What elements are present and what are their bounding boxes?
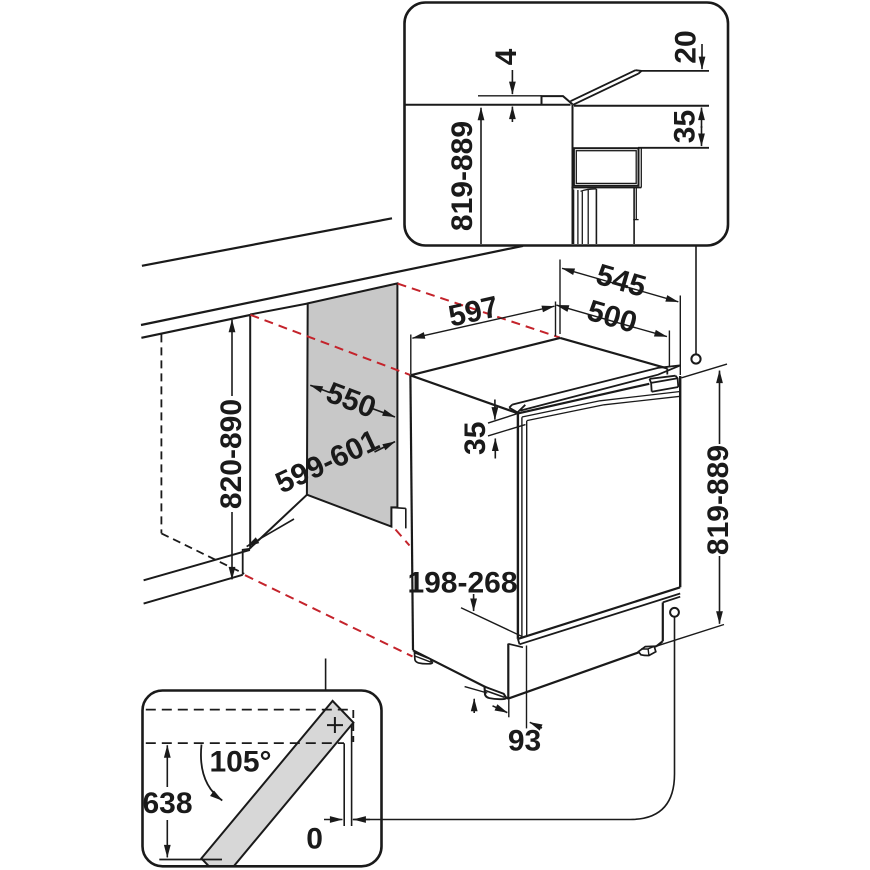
svg-text:20: 20: [670, 30, 703, 63]
svg-text:819-889: 819-889: [702, 445, 735, 555]
svg-text:198-268: 198-268: [407, 567, 517, 600]
svg-text:4: 4: [490, 48, 523, 65]
svg-text:93: 93: [508, 724, 541, 757]
svg-text:35: 35: [669, 110, 702, 143]
svg-text:0: 0: [306, 822, 323, 855]
svg-text:35: 35: [459, 422, 492, 455]
svg-text:638: 638: [142, 787, 192, 820]
svg-text:105°: 105°: [209, 746, 271, 779]
svg-text:820-890: 820-890: [215, 399, 248, 509]
svg-text:819-889: 819-889: [446, 121, 479, 231]
